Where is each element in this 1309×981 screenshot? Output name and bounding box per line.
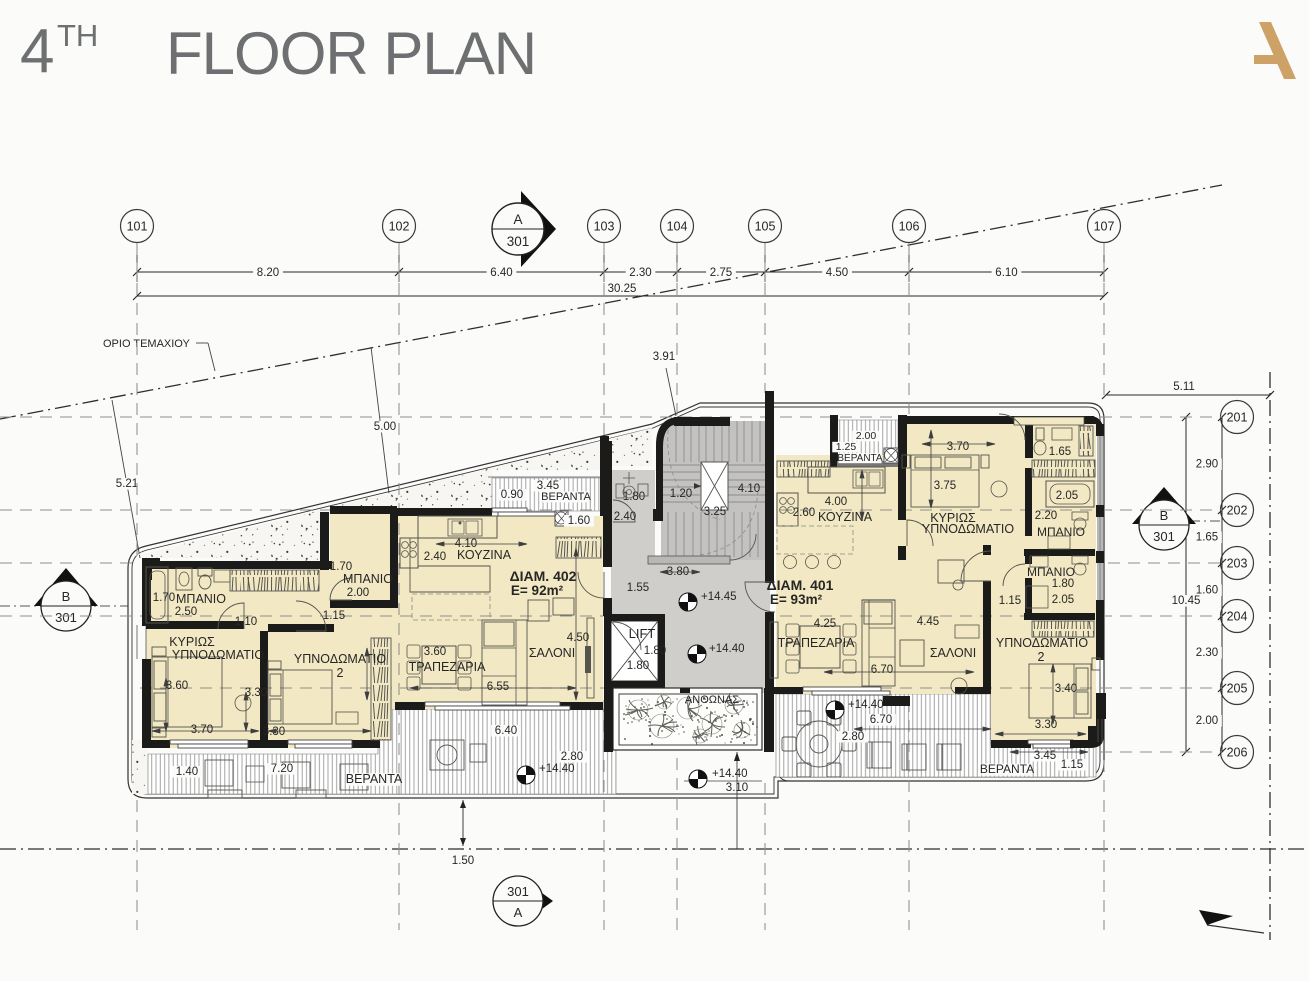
svg-text:6.40: 6.40 [490, 267, 512, 279]
svg-text:2.05: 2.05 [1056, 490, 1078, 502]
svg-text:4: 4 [20, 17, 54, 86]
svg-text:4.10: 4.10 [738, 483, 760, 495]
svg-text:301: 301 [55, 610, 77, 625]
svg-text:1.15: 1.15 [999, 595, 1021, 607]
svg-text:301: 301 [1153, 529, 1175, 544]
svg-text:3.10: 3.10 [726, 782, 748, 794]
svg-text:6.70: 6.70 [870, 714, 892, 726]
svg-text:1.80: 1.80 [627, 660, 649, 672]
svg-text:103: 103 [594, 220, 615, 234]
svg-text:2.00: 2.00 [1196, 715, 1218, 727]
svg-text:B: B [62, 589, 71, 604]
svg-text:2.80: 2.80 [561, 751, 583, 763]
svg-text:A: A [514, 905, 523, 920]
svg-text:ΔΙΑΜ. 402: ΔΙΑΜ. 402 [510, 568, 577, 584]
svg-text:+14.45: +14.45 [701, 591, 737, 603]
svg-text:2.90: 2.90 [1196, 459, 1218, 471]
svg-text:1.70: 1.70 [153, 592, 175, 604]
svg-text:2.40: 2.40 [424, 551, 446, 563]
svg-text:ΜΠΑΝΙΟ: ΜΠΑΝΙΟ [1037, 525, 1085, 539]
svg-text:204: 204 [1227, 610, 1248, 624]
svg-text:2.80: 2.80 [842, 731, 864, 743]
svg-text:0.90: 0.90 [501, 489, 523, 501]
svg-text:ΜΠΑΝΙΟ: ΜΠΑΝΙΟ [343, 572, 393, 586]
svg-text:ΒΕΡΑΝΤΑ: ΒΕΡΑΝΤΑ [980, 762, 1034, 776]
svg-text:8.20: 8.20 [257, 267, 279, 279]
svg-text:ΥΠΝΟΔΩΜΑΤΙΟ: ΥΠΝΟΔΩΜΑΤΙΟ [294, 652, 386, 666]
svg-text:2.00: 2.00 [347, 587, 369, 599]
svg-text:1.40: 1.40 [176, 766, 198, 778]
svg-text:1.65: 1.65 [1196, 532, 1218, 544]
svg-text:202: 202 [1227, 504, 1248, 518]
svg-text:1.65: 1.65 [1049, 446, 1071, 458]
svg-text:6.70: 6.70 [871, 664, 893, 676]
svg-text:101: 101 [127, 220, 148, 234]
svg-text:5.21: 5.21 [116, 478, 138, 490]
svg-text:3.60: 3.60 [166, 680, 188, 692]
svg-text:ΒΕΡΑΝΤΑ: ΒΕΡΑΝΤΑ [837, 453, 883, 464]
svg-text:301: 301 [507, 234, 530, 249]
svg-text:ΑΝΘΩΝΑΣ: ΑΝΘΩΝΑΣ [685, 694, 739, 706]
svg-text:ΒΕΡΑΝΤΑ: ΒΕΡΑΝΤΑ [541, 491, 591, 503]
svg-text:4.45: 4.45 [917, 616, 939, 628]
svg-text:1.15: 1.15 [1061, 759, 1083, 771]
svg-text:2: 2 [337, 666, 344, 680]
svg-text:5.11: 5.11 [1173, 381, 1195, 393]
svg-text:1.60: 1.60 [568, 515, 590, 527]
svg-text:4.50: 4.50 [826, 267, 848, 279]
svg-text:6.10: 6.10 [995, 267, 1017, 279]
svg-text:4.00: 4.00 [825, 496, 847, 508]
svg-text:3.40: 3.40 [1055, 683, 1077, 695]
svg-text:3.30: 3.30 [245, 687, 267, 699]
svg-text:2.50: 2.50 [175, 606, 197, 618]
svg-text:ΥΠΝΟΔΩΜΑΤΙΟ: ΥΠΝΟΔΩΜΑΤΙΟ [172, 648, 264, 662]
svg-text:ΜΠΑΝΙΟ: ΜΠΑΝΙΟ [176, 592, 226, 606]
svg-text:+14.40: +14.40 [712, 768, 748, 780]
svg-text:ΔΙΑΜ. 401: ΔΙΑΜ. 401 [767, 577, 834, 593]
svg-text:5.00: 5.00 [374, 421, 396, 433]
svg-text:E= 92m²: E= 92m² [511, 583, 564, 598]
svg-text:104: 104 [667, 220, 688, 234]
svg-text:ΣΑΛΟΝΙ: ΣΑΛΟΝΙ [930, 646, 976, 660]
svg-text:3.70: 3.70 [191, 724, 213, 736]
svg-text:ΤΡΑΠΕΖΑΡΙΑ: ΤΡΑΠΕΖΑΡΙΑ [409, 660, 487, 674]
svg-text:201: 201 [1227, 411, 1248, 425]
svg-text:ΚΟΥΖΙΝΑ: ΚΟΥΖΙΝΑ [818, 510, 873, 524]
svg-text:2.40: 2.40 [614, 511, 636, 523]
svg-text:2.60: 2.60 [793, 507, 815, 519]
svg-text:3.60: 3.60 [424, 646, 446, 658]
svg-text:E= 93m²: E= 93m² [770, 592, 823, 607]
svg-text:205: 205 [1227, 682, 1248, 696]
svg-text:7.20: 7.20 [271, 763, 293, 775]
svg-text:1.20: 1.20 [670, 488, 692, 500]
svg-text:ΒΕΡΑΝΤΑ: ΒΕΡΑΝΤΑ [346, 772, 403, 786]
svg-text:A: A [513, 212, 522, 227]
svg-text:6.55: 6.55 [487, 681, 509, 693]
svg-text:2.30: 2.30 [629, 267, 651, 279]
svg-text:106: 106 [899, 220, 920, 234]
svg-text:3.91: 3.91 [653, 351, 675, 363]
svg-text:ΥΠΝΟΔΩΜΑΤΙΟ: ΥΠΝΟΔΩΜΑΤΙΟ [922, 522, 1014, 536]
svg-text:+14.40: +14.40 [539, 763, 575, 775]
svg-text:FLOOR PLAN: FLOOR PLAN [166, 20, 536, 87]
svg-text:3.70: 3.70 [947, 441, 969, 453]
svg-text:3.75: 3.75 [934, 480, 956, 492]
svg-text:TH: TH [57, 18, 98, 53]
svg-text:ΤΡΑΠΕΖΑΡΙΑ: ΤΡΑΠΕΖΑΡΙΑ [778, 636, 856, 650]
svg-text:6.40: 6.40 [495, 725, 517, 737]
svg-text:2.20: 2.20 [1035, 510, 1057, 522]
svg-text:2.00: 2.00 [856, 430, 877, 442]
svg-text:2.75: 2.75 [710, 267, 732, 279]
svg-text:ΚΥΡΙΩΣ: ΚΥΡΙΩΣ [169, 635, 215, 649]
svg-text:30.25: 30.25 [608, 283, 637, 295]
svg-text:206: 206 [1227, 746, 1248, 760]
svg-text:ΣΑΛΟΝΙ: ΣΑΛΟΝΙ [529, 646, 575, 660]
svg-text:203: 203 [1227, 557, 1248, 571]
svg-text:105: 105 [755, 220, 776, 234]
svg-text:3.25: 3.25 [704, 506, 726, 518]
svg-text:+14.40: +14.40 [848, 699, 884, 711]
svg-text:1.15: 1.15 [323, 610, 345, 622]
svg-text:1.80: 1.80 [1052, 578, 1074, 590]
svg-text:LIFT: LIFT [629, 626, 656, 641]
svg-text:1.25: 1.25 [836, 441, 857, 453]
svg-text:1.80: 1.80 [644, 645, 666, 657]
svg-text:4.25: 4.25 [814, 618, 836, 630]
svg-text:2.05: 2.05 [1052, 594, 1074, 606]
svg-text:301: 301 [507, 884, 529, 899]
svg-text:2.30: 2.30 [1196, 647, 1218, 659]
svg-text:10.45: 10.45 [1172, 595, 1201, 607]
svg-text:ΜΠΑΝΙΟ: ΜΠΑΝΙΟ [1027, 565, 1075, 579]
svg-text:107: 107 [1094, 220, 1115, 234]
svg-text:+14.40: +14.40 [709, 643, 745, 655]
svg-text:1.55: 1.55 [627, 582, 649, 594]
svg-text:ΟΡΙΟ ΤΕΜΑΧΙΟΥ: ΟΡΙΟ ΤΕΜΑΧΙΟΥ [103, 338, 191, 350]
svg-text:1.50: 1.50 [452, 855, 474, 867]
svg-text:ΥΠΝΟΔΩΜΑΤΙΟ: ΥΠΝΟΔΩΜΑΤΙΟ [996, 636, 1088, 650]
svg-text:2: 2 [1038, 650, 1045, 664]
svg-text:1.10: 1.10 [235, 616, 257, 628]
svg-text:102: 102 [389, 220, 410, 234]
svg-text:ΚΟΥΖΙΝΑ: ΚΟΥΖΙΝΑ [457, 548, 512, 562]
svg-text:4.50: 4.50 [567, 632, 589, 644]
